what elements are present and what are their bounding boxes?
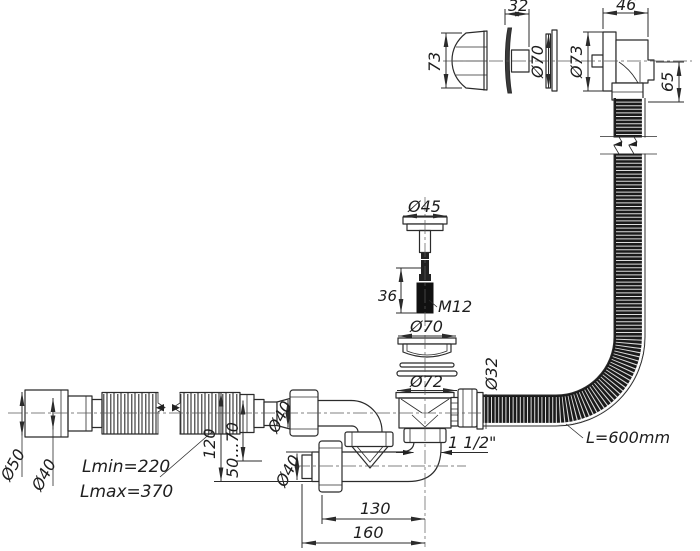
overflow-cover-plate [546, 30, 557, 91]
dim-cuff-inner-diameter: Ø40 [27, 456, 60, 495]
tee-outlet-fittings [451, 389, 483, 429]
overflow-hose [480, 98, 657, 426]
flexible-outlet-pipe [25, 390, 290, 437]
dim-rosette-width: 32 [508, 0, 528, 15]
overflow-knob [452, 31, 487, 90]
dim-flange-diameter: Ø73 [567, 45, 586, 79]
drain-strainer [398, 338, 456, 357]
dim-drain-hole-diameter: Ø72 [409, 372, 443, 391]
overflow-body [592, 32, 654, 100]
dim-outlet-thread: 1 1/2" [448, 433, 496, 452]
bath-drain-technical-drawing: 73 32 Ø70 Ø73 46 65 Ø45 36 M12 Ø70 [0, 0, 700, 551]
dim-pipe-min-length: Lmin=220 [82, 457, 170, 477]
dim-drop-height: 120 [200, 428, 219, 459]
dim-overflow-hose-length: L=600mm [586, 428, 670, 447]
drawing-canvas: 73 32 Ø70 Ø73 46 65 Ø45 36 M12 Ø70 [0, 0, 700, 551]
dim-overflow-hose-diameter: Ø32 [482, 357, 501, 391]
dim-offset-130: 130 [360, 499, 391, 518]
dim-body-width: 46 [616, 0, 636, 14]
dim-lower-pipe-diameter: Ø40 [271, 452, 304, 491]
overflow-rosette [505, 28, 529, 93]
dim-overflow-drop: 65 [658, 72, 677, 92]
dim-pipe-max-length: Lmax=370 [80, 482, 173, 502]
dim-knob-height: 73 [425, 52, 444, 72]
dim-plate-diameter: Ø70 [528, 45, 547, 79]
dim-plug-cap-diameter: Ø45 [407, 197, 441, 216]
dim-offset-160: 160 [353, 523, 384, 542]
dim-adjust-range: 50...70 [223, 422, 242, 478]
dim-stud-length: 36 [378, 287, 397, 305]
dim-thread-size: M12 [438, 297, 472, 316]
hose-break-gap [605, 138, 652, 154]
dim-cuff-diameter: Ø50 [0, 446, 29, 485]
dim-strainer-diameter: Ø70 [409, 317, 443, 336]
